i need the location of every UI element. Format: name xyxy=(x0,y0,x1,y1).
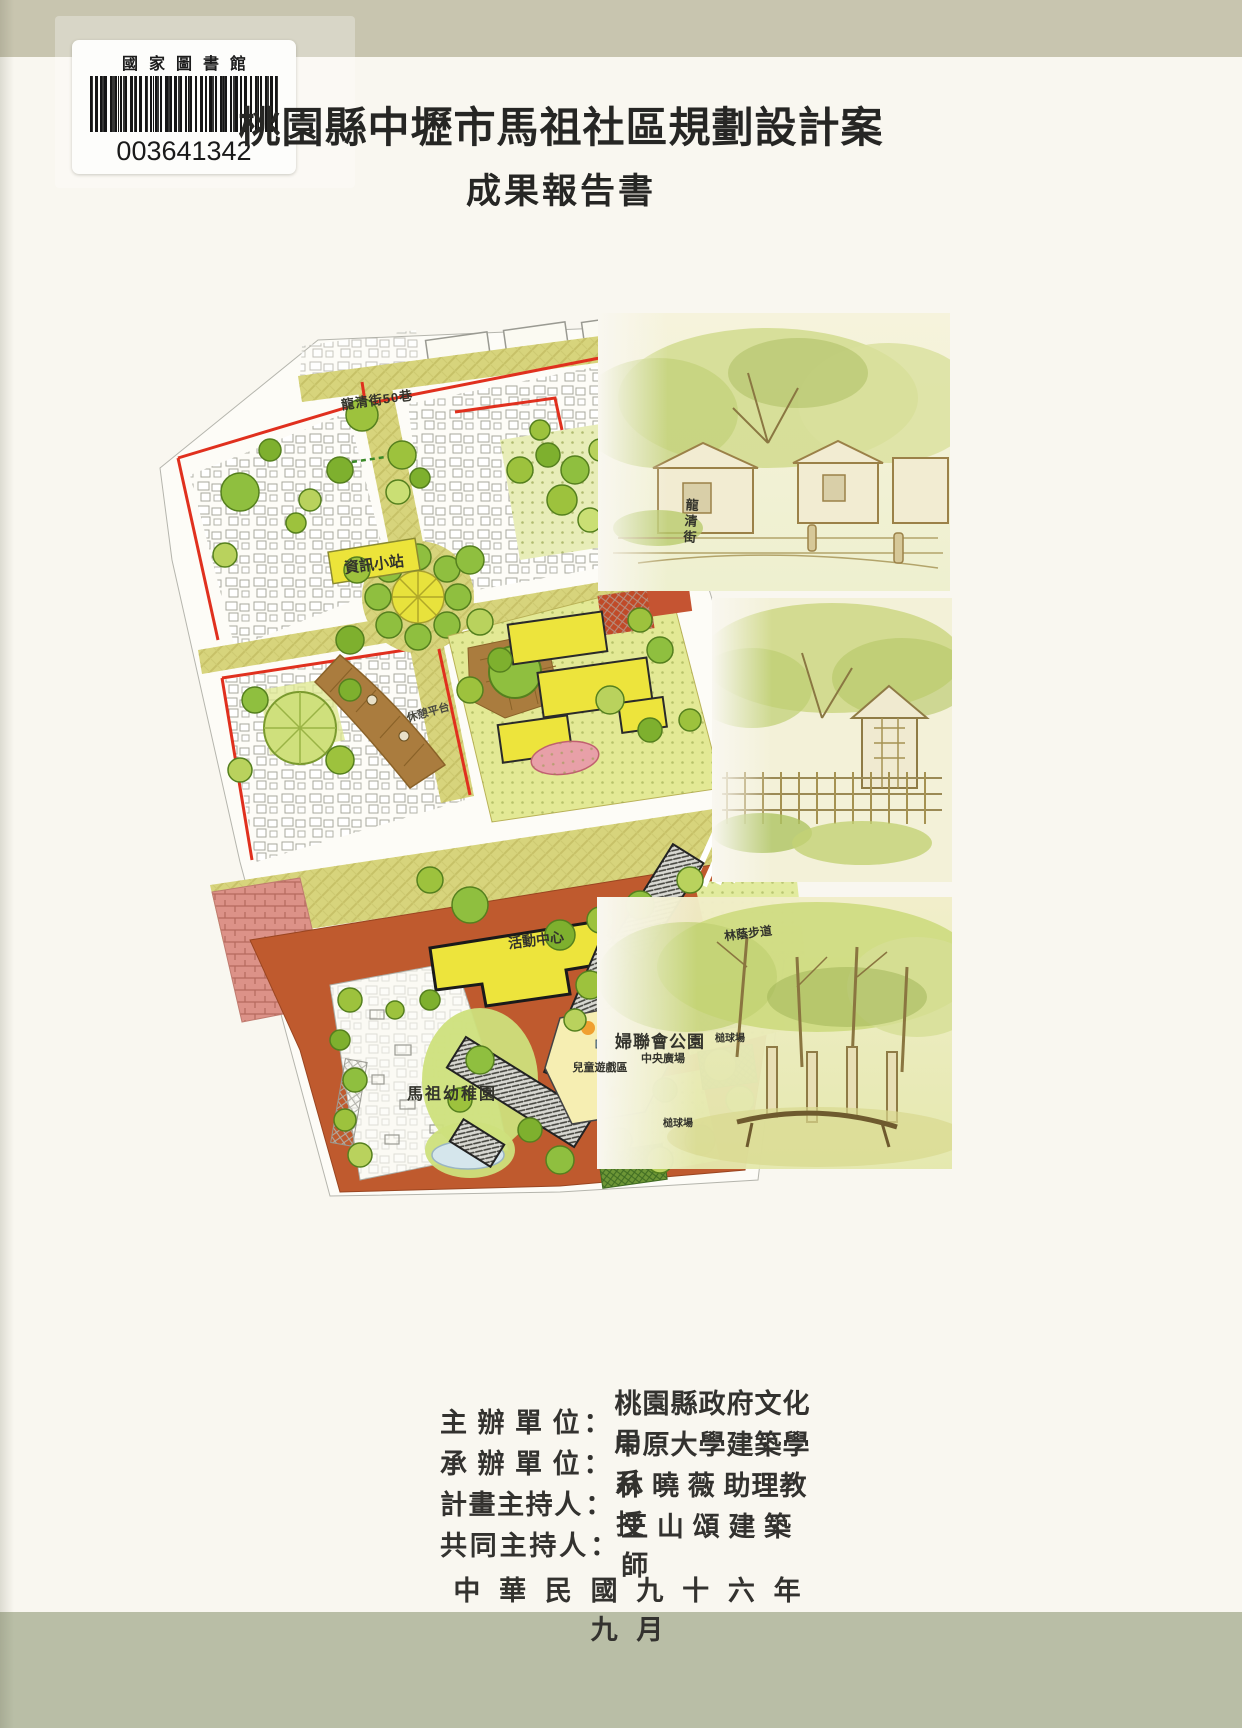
credit-colon: ： xyxy=(581,1483,616,1522)
map-label-children-play: 兒童遊戲區 xyxy=(573,1059,628,1075)
large-courtyard-tree xyxy=(264,692,336,764)
map-label-kindergarten: 馬祖幼稚園 xyxy=(407,1080,497,1104)
library-name: 國家圖書館 xyxy=(72,50,296,74)
map-label-central-plaza: 中央廣場 xyxy=(641,1050,685,1066)
credit-label: 計畫主持人 xyxy=(440,1483,581,1522)
credit-label: 承 辦 單 位 xyxy=(440,1442,579,1481)
sketch-street-houses xyxy=(598,313,950,591)
page-subtitle: 成果報告書 xyxy=(161,163,961,214)
credit-colon: ： xyxy=(579,1442,614,1481)
publication-date: 中 華 民 國 九 十 六 年 九 月 xyxy=(440,1569,820,1647)
credit-label: 主 辦 單 位 xyxy=(440,1401,579,1440)
map-label-womens-league-park: 婦聯會公園 xyxy=(615,1028,705,1053)
credit-row-co-principal: 共同主持人：王 山 頌 建 築 師 xyxy=(440,1523,820,1564)
map-label-croquet-upper: 槌球場 xyxy=(715,1030,745,1045)
map-label-street-right: 龍清街 xyxy=(679,497,701,546)
report-cover: 龍清街50巷 龍清街 資訊小站 休憩平台 活動中心 林蔭步道 馬祖幼稚園 兒童遊… xyxy=(0,0,1242,1728)
credit-colon: ： xyxy=(579,1401,614,1440)
credits-block: 主 辦 單 位：桃園縣政府文化局 承 辦 單 位：中原大學建築學系 計畫主持人：… xyxy=(440,1400,820,1647)
page-title: 桃園縣中壢市馬祖社區規劃設計案 xyxy=(161,94,961,155)
sketch-fence-pavilion xyxy=(712,598,952,882)
credit-label: 共同主持人 xyxy=(440,1524,586,1563)
credit-colon: ： xyxy=(586,1524,621,1563)
map-label-croquet-lower: 槌球場 xyxy=(663,1115,693,1130)
